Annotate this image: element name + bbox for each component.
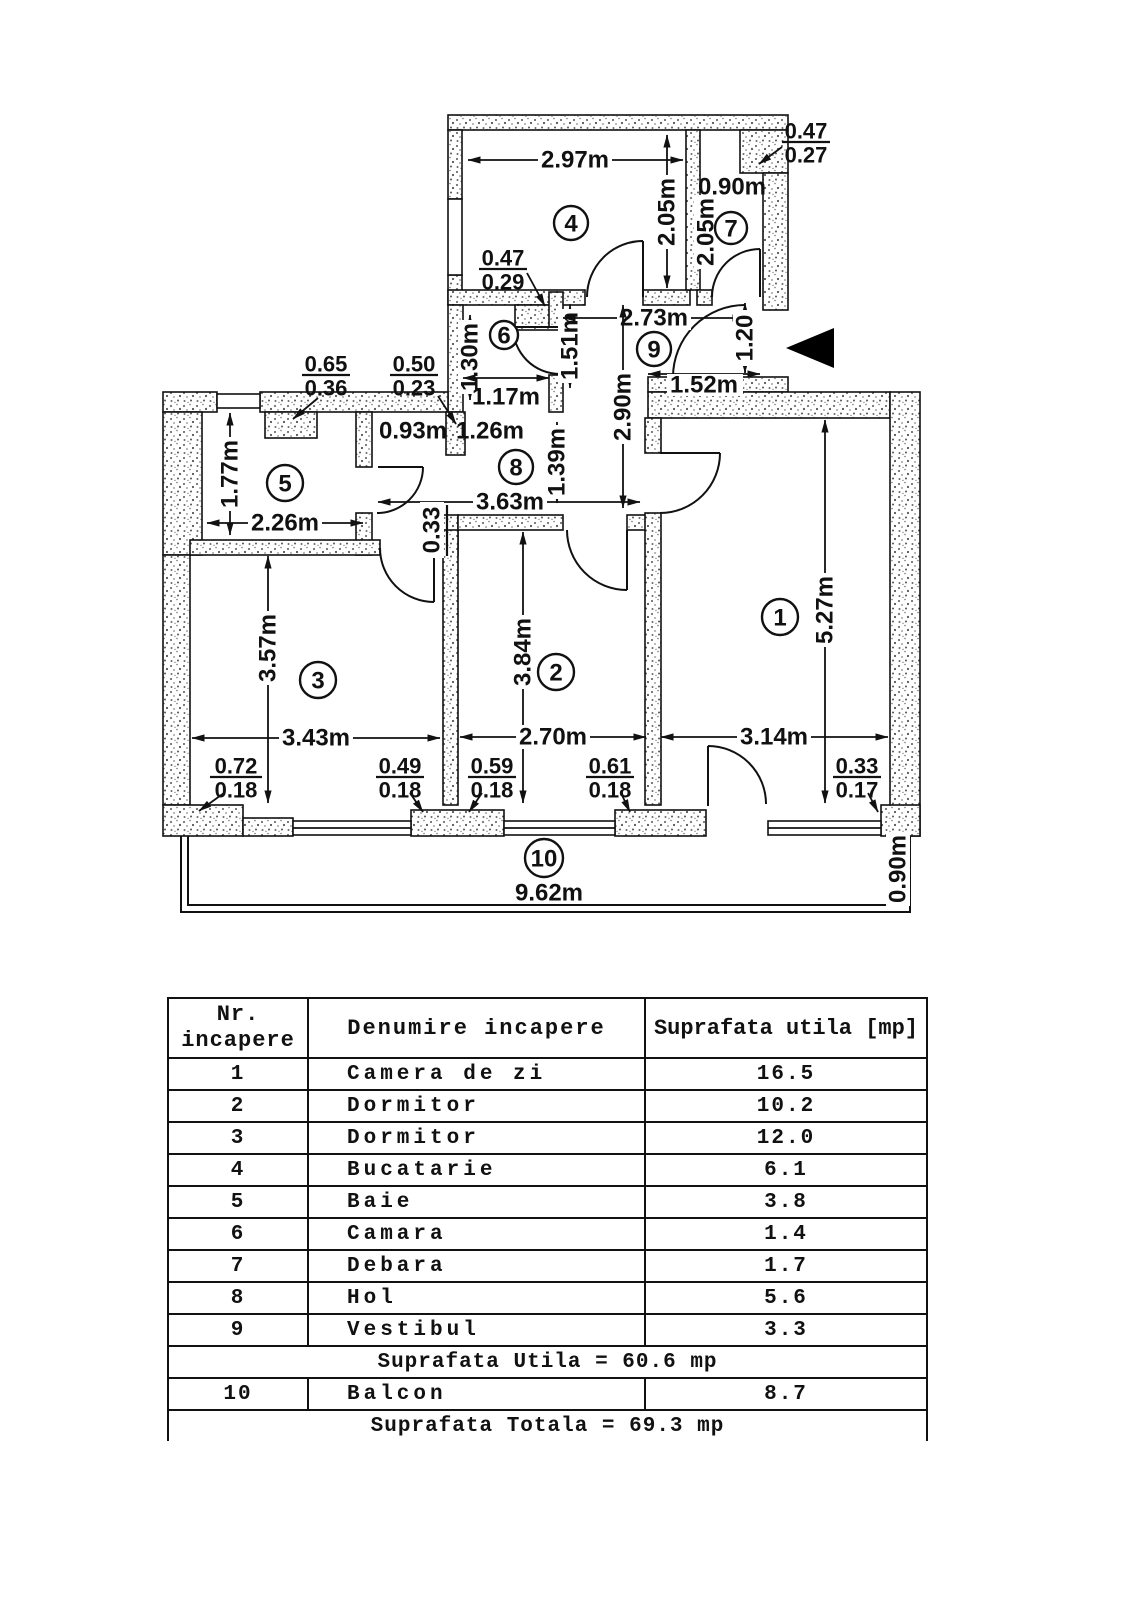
svg-text:1.52m: 1.52m <box>670 372 738 399</box>
subtotal-row: Suprafata Utila = 60.6 mp <box>168 1346 927 1378</box>
svg-text:9: 9 <box>647 337 660 364</box>
room-badge-9: 9 <box>637 332 671 366</box>
room-badge-3: 3 <box>300 662 336 698</box>
dim-opening-right: 1.26m <box>456 418 524 445</box>
svg-text:0.33: 0.33 <box>836 754 879 779</box>
svg-text:8: 8 <box>509 455 522 482</box>
dim-vestibul-height: 2.90m <box>610 305 637 508</box>
room-badge-8: 8 <box>499 450 533 484</box>
room-badge-2: 2 <box>538 654 574 690</box>
svg-text:7: 7 <box>724 216 737 243</box>
annotation-win2b: 0.61 0.18 <box>586 754 634 813</box>
room-badge-1: 1 <box>762 599 798 635</box>
svg-text:0.90m: 0.90m <box>885 835 912 903</box>
dim-room1-width: 3.14m <box>661 724 888 751</box>
svg-text:0.18: 0.18 <box>589 778 632 803</box>
table-row: 7Debara1.7 <box>168 1250 927 1282</box>
svg-text:1.39m: 1.39m <box>544 428 571 496</box>
dim-room1-height: 5.27m <box>812 420 839 803</box>
svg-text:6: 6 <box>497 323 510 350</box>
svg-text:5.27m: 5.27m <box>812 576 839 644</box>
window-bath-top <box>217 394 260 408</box>
room-badge-6: 6 <box>490 321 518 350</box>
dim-room2-width: 2.70m <box>460 724 646 751</box>
table-row: 4Bucatarie6.1 <box>168 1154 927 1186</box>
door-room4 <box>587 241 643 297</box>
svg-text:3.63m: 3.63m <box>476 489 544 516</box>
entrance-arrow <box>786 328 834 368</box>
door-room1 <box>660 453 720 513</box>
dim-room4-height: 2.05m <box>654 135 681 288</box>
dim-balcon-width: 9.62m <box>515 880 583 907</box>
subtotal-label: Suprafata Utila = 60.6 mp <box>168 1346 927 1378</box>
svg-text:3.14m: 3.14m <box>740 724 808 751</box>
annotation-win3a: 0.72 0.18 <box>199 754 262 812</box>
svg-text:2.70m: 2.70m <box>519 724 587 751</box>
table-row: 3Dormitor12.0 <box>168 1122 927 1154</box>
svg-text:2.05m: 2.05m <box>654 178 681 246</box>
svg-text:3.84m: 3.84m <box>510 618 537 686</box>
dim-camara-opening: 1.17m <box>463 378 549 411</box>
window-kitchen-left <box>448 199 462 275</box>
room-badge-10: 10 <box>525 839 563 877</box>
door-balcony <box>708 746 766 806</box>
table-row: 2Dormitor10.2 <box>168 1090 927 1122</box>
svg-text:0.61: 0.61 <box>589 754 632 779</box>
svg-text:0.29: 0.29 <box>482 270 525 295</box>
svg-text:9.62m: 9.62m <box>515 880 583 907</box>
svg-text:1.51m: 1.51m <box>557 312 584 380</box>
annotation-win2a: 0.59 0.18 <box>468 754 516 813</box>
door-baie <box>377 467 423 513</box>
svg-text:2.73m: 2.73m <box>620 305 688 332</box>
room-badge-7: 7 <box>715 212 747 244</box>
svg-text:1.26m: 1.26m <box>456 418 524 445</box>
svg-text:1.17m: 1.17m <box>472 384 540 411</box>
svg-text:3.57m: 3.57m <box>255 614 282 682</box>
svg-text:0.33: 0.33 <box>419 507 446 554</box>
svg-text:0.27: 0.27 <box>785 143 828 168</box>
room-badge-4: 4 <box>554 206 588 240</box>
dim-room2-height: 3.84m <box>510 532 537 803</box>
door-room2 <box>567 530 627 590</box>
dim-hol-height: 1.39m <box>544 422 571 503</box>
table-row: 6Camara1.4 <box>168 1218 927 1250</box>
dim-opening-left: 0.93m <box>379 418 447 445</box>
svg-text:0.47: 0.47 <box>785 119 828 144</box>
svg-text:1: 1 <box>773 605 786 632</box>
dim-baie-height: 1.77m <box>217 413 244 535</box>
areas-table: Nr. incapere Denumire incapere Suprafata… <box>167 997 928 1441</box>
header-area: Suprafata utila [mp] <box>645 998 927 1058</box>
header-name: Denumire incapere <box>308 998 645 1058</box>
table-row: 8Hol5.6 <box>168 1282 927 1314</box>
svg-text:1.30m: 1.30m <box>457 323 484 391</box>
svg-text:2.90m: 2.90m <box>610 373 637 441</box>
table-row: 10Balcon8.7 <box>168 1378 927 1410</box>
svg-text:0.72: 0.72 <box>215 754 258 779</box>
svg-text:1.20: 1.20 <box>732 315 759 362</box>
svg-text:2: 2 <box>549 660 562 687</box>
room-badge-5: 5 <box>267 465 303 501</box>
dim-hol-width: 3.63m <box>378 489 640 516</box>
annotation-win3b: 0.49 0.18 <box>376 754 424 813</box>
dim-vestibul-width: 2.73m <box>563 305 745 332</box>
svg-text:5: 5 <box>278 471 291 498</box>
svg-text:0.49: 0.49 <box>379 754 422 779</box>
dim-room3-width: 3.43m <box>192 725 440 752</box>
svg-text:0.93m: 0.93m <box>379 418 447 445</box>
table-row: 9Vestibul3.3 <box>168 1314 927 1346</box>
svg-text:4: 4 <box>564 211 578 238</box>
table-header-row: Nr. incapere Denumire incapere Suprafata… <box>168 998 927 1058</box>
door-camara <box>513 327 560 374</box>
table-row: 1Camera de zi16.5 <box>168 1058 927 1090</box>
svg-text:3.43m: 3.43m <box>282 725 350 752</box>
svg-text:0.59: 0.59 <box>471 754 514 779</box>
annotation-win1: 0.33 0.17 <box>833 754 881 813</box>
dim-room3-height: 3.57m <box>255 556 282 803</box>
dim-room4-width: 2.97m <box>468 147 683 174</box>
header-nr: Nr. incapere <box>168 998 308 1058</box>
table-row: 5Baie3.8 <box>168 1186 927 1218</box>
dim-wall-step: 0.33 <box>419 502 448 558</box>
floor-plan: 2.97m 2.05m 0.90m 2.05m 1.30m 1.17m 1.51 <box>0 0 1131 965</box>
svg-text:0.47: 0.47 <box>482 246 525 271</box>
total-label: Suprafata Totala = 69.3 mp <box>168 1410 927 1441</box>
svg-text:2.97m: 2.97m <box>541 147 609 174</box>
svg-text:2.26m: 2.26m <box>251 510 319 537</box>
floorplan-page: 2.97m 2.05m 0.90m 2.05m 1.30m 1.17m 1.51 <box>0 0 1131 1600</box>
svg-text:0.50: 0.50 <box>393 352 436 377</box>
svg-text:0.23: 0.23 <box>393 376 436 401</box>
svg-text:3: 3 <box>311 668 324 695</box>
dim-balcon-depth: 0.90m <box>885 832 912 906</box>
total-row: Suprafata Totala = 69.3 mp <box>168 1410 927 1441</box>
dim-entry-door: 1.20 <box>732 303 759 373</box>
svg-text:0.36: 0.36 <box>305 376 348 401</box>
svg-text:10: 10 <box>531 846 558 873</box>
svg-text:1.77m: 1.77m <box>217 440 244 508</box>
svg-text:0.65: 0.65 <box>305 352 348 377</box>
svg-text:0.18: 0.18 <box>215 778 258 803</box>
